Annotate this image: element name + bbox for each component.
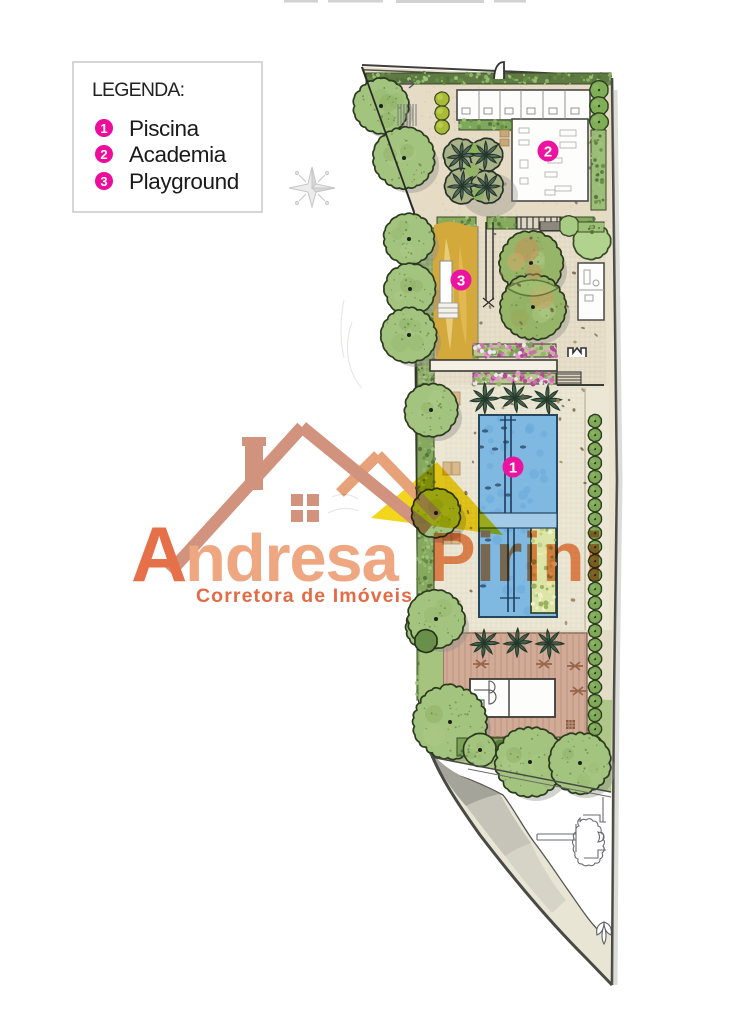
svg-text:1: 1 bbox=[100, 121, 107, 136]
svg-text:Piscina: Piscina bbox=[129, 116, 200, 141]
svg-text:Corretora de Imóveis: Corretora de Imóveis bbox=[196, 585, 413, 607]
svg-text:3: 3 bbox=[457, 273, 465, 290]
svg-text:Pirini: Pirini bbox=[429, 518, 604, 596]
svg-text:2: 2 bbox=[100, 147, 107, 162]
svg-text:Playground: Playground bbox=[129, 169, 239, 194]
svg-text:Academia: Academia bbox=[129, 142, 227, 167]
svg-text:1: 1 bbox=[509, 460, 517, 477]
svg-text:LEGENDA:: LEGENDA: bbox=[92, 79, 184, 101]
svg-text:2: 2 bbox=[544, 144, 552, 161]
svg-text:3: 3 bbox=[100, 174, 107, 189]
svg-text:A: A bbox=[131, 510, 187, 598]
